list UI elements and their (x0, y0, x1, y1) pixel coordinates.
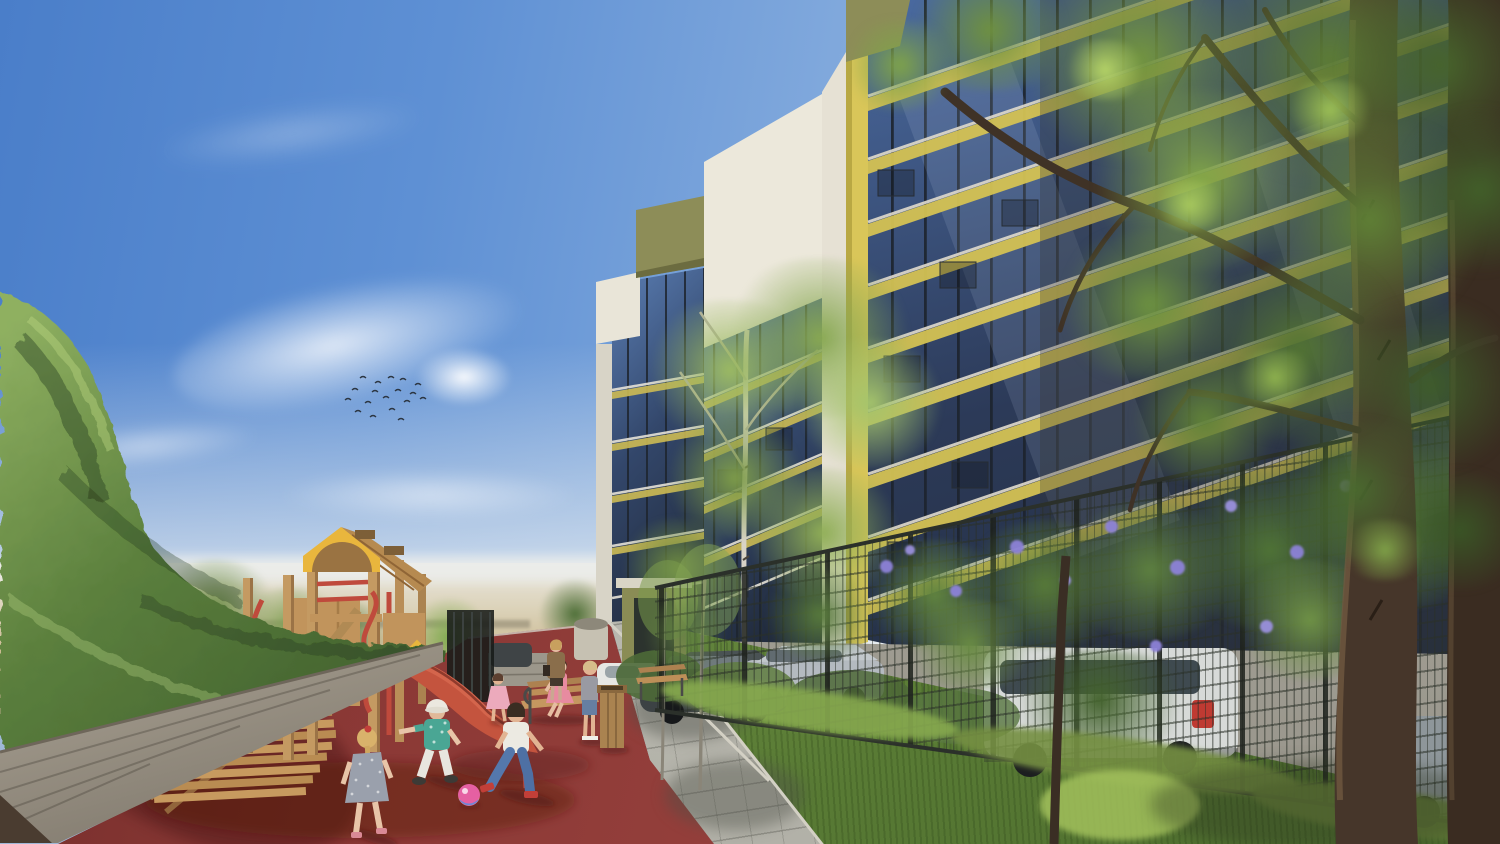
cloud-low-haze (280, 470, 580, 520)
tree-canopy-sunlit (1060, 40, 1150, 100)
purple-flower (1225, 500, 1237, 512)
purple-flower (1170, 560, 1185, 575)
purple-flower (1260, 620, 1273, 633)
tree-canopy-sunlit (1340, 520, 1430, 580)
birch-canopy (790, 338, 950, 468)
horizon-haze (0, 556, 665, 582)
purple-flower (1150, 640, 1162, 652)
wall-dark-base (0, 795, 52, 843)
purple-flower (905, 545, 915, 555)
tree-canopy-sunlit (1230, 350, 1320, 405)
purple-flower (1010, 540, 1024, 554)
cloud-bright-small (416, 348, 512, 406)
vine-foliage (640, 600, 730, 670)
tree-canopy-sunlit (1280, 80, 1380, 140)
tree-canopy (840, 20, 960, 110)
vine-foliage (1230, 560, 1390, 680)
purple-flower (1060, 575, 1071, 586)
tree-shadow-on-grass (1150, 760, 1500, 844)
tree-canopy-sunlit (1150, 180, 1230, 230)
purple-flower (950, 585, 962, 597)
courtyard-render-scene (0, 0, 1500, 844)
purple-flower (880, 560, 893, 573)
purple-flower (1105, 520, 1118, 533)
background-tree (300, 600, 390, 670)
